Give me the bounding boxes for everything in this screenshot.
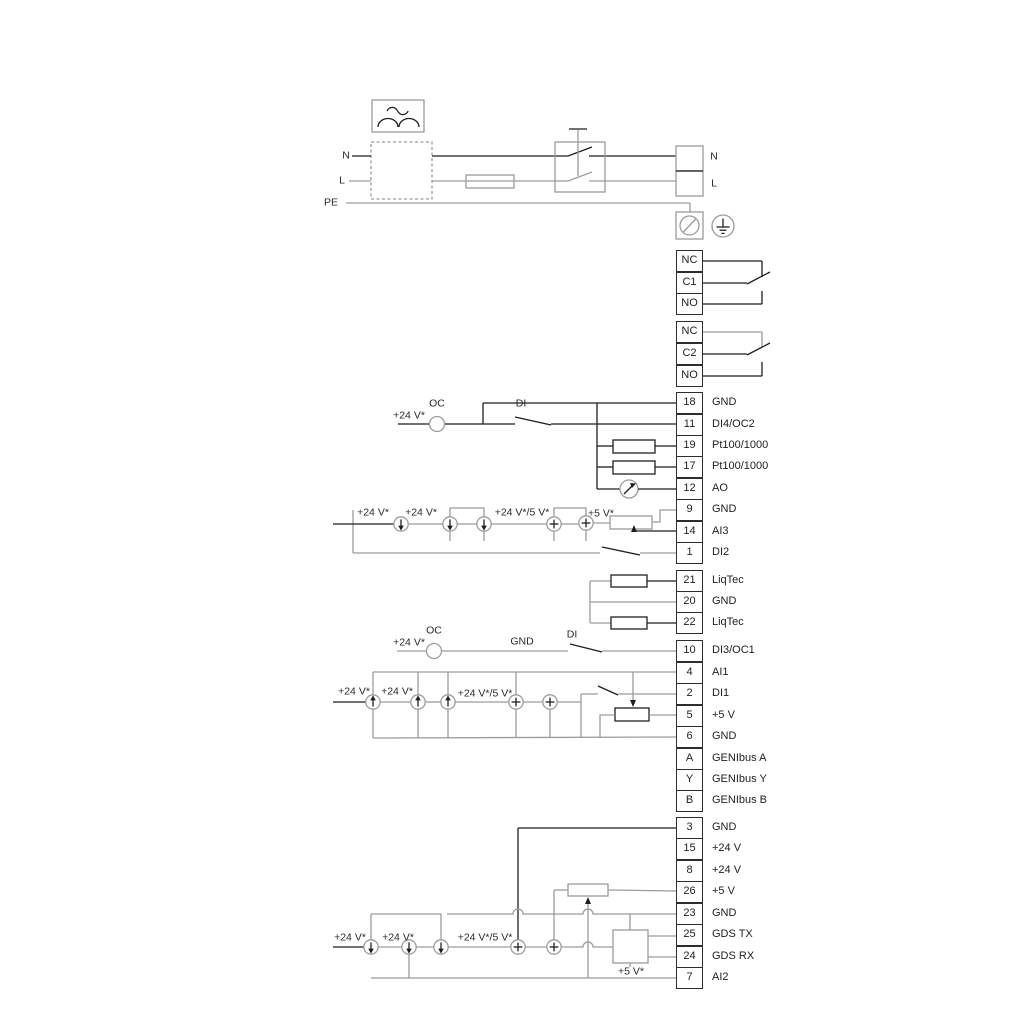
terminal-cell: B bbox=[676, 790, 703, 812]
relay-terminal-cell: NC bbox=[676, 250, 703, 272]
pt100-resistor-icon bbox=[613, 461, 655, 474]
terminal-label: LiqTec bbox=[712, 616, 744, 629]
terminal-label: Pt100/1000 bbox=[712, 439, 768, 452]
potentiometer-icon bbox=[615, 708, 649, 721]
terminal-label: +24 V bbox=[712, 864, 741, 877]
terminal-label: GENIbus Y bbox=[712, 773, 767, 786]
di3-oc1-section bbox=[397, 644, 676, 659]
mains-l-out-label: L bbox=[711, 179, 717, 190]
terminal-label: GDS RX bbox=[712, 950, 754, 963]
mains-switch-blade-l bbox=[568, 172, 592, 181]
terminal-label: Pt100/1000 bbox=[712, 460, 768, 473]
terminal-cell: 10 bbox=[676, 640, 703, 662]
wire-hop bbox=[447, 909, 676, 914]
pt100-resistor-icon bbox=[613, 440, 655, 453]
terminal-cell: 23 bbox=[676, 903, 703, 925]
open-collector-icon bbox=[430, 417, 445, 432]
liqtec-sensor-icon bbox=[611, 575, 647, 587]
terminal-label: AI3 bbox=[712, 525, 729, 538]
di1-switch-blade-icon bbox=[598, 686, 618, 695]
terminal-cell: 5 bbox=[676, 705, 703, 727]
supply-5v-label: +5 V* bbox=[588, 509, 614, 520]
terminal-cell: 21 bbox=[676, 570, 703, 592]
terminal-cell: 11 bbox=[676, 414, 703, 436]
terminal-label: AI1 bbox=[712, 666, 729, 679]
di4-oc2-section bbox=[398, 403, 676, 498]
supply-24v-label: +24 V* bbox=[334, 933, 366, 944]
terminal-label: GND bbox=[712, 907, 736, 920]
mains-switch-box bbox=[555, 142, 605, 192]
terminal-cell: 12 bbox=[676, 478, 703, 500]
earth-ground-icon bbox=[712, 215, 734, 237]
terminal-label: +5 V bbox=[712, 709, 735, 722]
terminal-label: GDS TX bbox=[712, 928, 753, 941]
open-collector-label: OC bbox=[429, 399, 445, 410]
terminal-label: GND bbox=[712, 503, 736, 516]
open-collector-icon bbox=[427, 644, 442, 659]
terminal-label: AI2 bbox=[712, 971, 729, 984]
supply-5v-label: +5 V* bbox=[618, 967, 644, 978]
terminal-label: AO bbox=[712, 482, 728, 495]
mains-terminal-l bbox=[676, 171, 703, 196]
terminal-label: DI4/OC2 bbox=[712, 418, 755, 431]
supply-24v-5v-label: +24 V*/5 V* bbox=[495, 508, 550, 519]
terminal-cell: 9 bbox=[676, 499, 703, 521]
digital-input-label: DI bbox=[567, 630, 578, 641]
terminal-cell: 14 bbox=[676, 521, 703, 543]
terminal-label: DI1 bbox=[712, 687, 729, 700]
mains-l-in-label: L bbox=[339, 176, 345, 187]
relay-1-contacts bbox=[703, 261, 770, 304]
gnd-label: GND bbox=[510, 637, 533, 648]
terminal-cell: 7 bbox=[676, 967, 703, 989]
di2-switch-blade-icon bbox=[602, 547, 640, 555]
supply-24v-label: +24 V* bbox=[393, 411, 425, 422]
relay-terminal-cell: NC bbox=[676, 321, 703, 343]
ai2-gds-section bbox=[333, 828, 676, 978]
terminal-label: +24 V bbox=[712, 842, 741, 855]
di-switch-blade-icon bbox=[570, 644, 602, 652]
terminal-cell: 25 bbox=[676, 924, 703, 946]
liqtec-sensor-icon bbox=[611, 617, 647, 629]
terminal-label: DI3/OC1 bbox=[712, 644, 755, 657]
mains-switch-blade-n bbox=[568, 147, 592, 156]
terminal-cell: 2 bbox=[676, 683, 703, 705]
relay-2-contacts bbox=[703, 332, 770, 376]
terminal-cell: 19 bbox=[676, 435, 703, 457]
mains-pe-label: PE bbox=[324, 198, 338, 209]
relay-2-blade-icon bbox=[747, 343, 770, 355]
terminal-label: GND bbox=[712, 595, 736, 608]
terminal-cell: 18 bbox=[676, 392, 703, 414]
relay-terminal-cell: C2 bbox=[676, 343, 703, 365]
terminal-cell: 17 bbox=[676, 456, 703, 478]
wire-hop bbox=[561, 942, 613, 947]
supply-24v-label: +24 V* bbox=[405, 508, 437, 519]
supply-24v-5v-label: +24 V*/5 V* bbox=[458, 689, 513, 700]
supply-24v-label: +24 V* bbox=[357, 508, 389, 519]
terminal-cell: 8 bbox=[676, 860, 703, 882]
power-section bbox=[346, 100, 734, 239]
terminal-cell: 15 bbox=[676, 838, 703, 860]
relay-terminal-cell: NO bbox=[676, 293, 703, 315]
rectified-wave-icon bbox=[378, 119, 419, 128]
wiring-diagram: NCC1NONCC2NO18GND11DI4/OC219Pt100/100017… bbox=[0, 0, 1024, 1024]
terminal-cell: 20 bbox=[676, 591, 703, 613]
open-collector-label: OC bbox=[426, 626, 442, 637]
terminal-cell: 26 bbox=[676, 881, 703, 903]
gds-sensor-box bbox=[613, 930, 648, 963]
supply-24v-label: +24 V* bbox=[338, 687, 370, 698]
mains-n-in-label: N bbox=[342, 151, 350, 162]
terminal-cell: Y bbox=[676, 769, 703, 791]
mains-terminal-n bbox=[676, 146, 703, 171]
liqtec-section bbox=[590, 575, 676, 629]
di-switch-blade-icon bbox=[515, 417, 551, 425]
ai1-sensor-options bbox=[333, 672, 676, 738]
filter-box bbox=[371, 142, 432, 199]
terminal-label: +5 V bbox=[712, 885, 735, 898]
terminal-cell: 4 bbox=[676, 662, 703, 684]
supply-24v-label: +24 V* bbox=[381, 687, 413, 698]
relay-terminal-cell: C1 bbox=[676, 272, 703, 294]
potentiometer-icon bbox=[610, 516, 652, 529]
terminal-cell: 1 bbox=[676, 542, 703, 564]
screw-slot-icon bbox=[683, 219, 696, 233]
terminal-cell: 6 bbox=[676, 726, 703, 748]
relay-terminal-cell: NO bbox=[676, 365, 703, 387]
rectifier-box-icon bbox=[372, 100, 424, 132]
terminal-cell: 24 bbox=[676, 946, 703, 968]
digital-input-label: DI bbox=[516, 399, 527, 410]
terminal-label: GND bbox=[712, 730, 736, 743]
potentiometer-icon bbox=[568, 884, 608, 896]
terminal-cell: A bbox=[676, 748, 703, 770]
terminal-cell: 3 bbox=[676, 817, 703, 839]
supply-24v-5v-label: +24 V*/5 V* bbox=[458, 933, 513, 944]
terminal-label: DI2 bbox=[712, 546, 729, 559]
mains-n-out-label: N bbox=[710, 152, 718, 163]
ac-wave-icon bbox=[387, 107, 408, 114]
terminal-label: GENIbus B bbox=[712, 794, 767, 807]
terminal-cell: 22 bbox=[676, 612, 703, 634]
supply-24v-label: +24 V* bbox=[382, 933, 414, 944]
terminal-label: GND bbox=[712, 396, 736, 409]
terminal-label: GND bbox=[712, 821, 736, 834]
relay-1-blade-icon bbox=[747, 272, 770, 284]
supply-24v-label: +24 V* bbox=[393, 638, 425, 649]
terminal-label: LiqTec bbox=[712, 574, 744, 587]
terminal-label: GENIbus A bbox=[712, 752, 766, 765]
